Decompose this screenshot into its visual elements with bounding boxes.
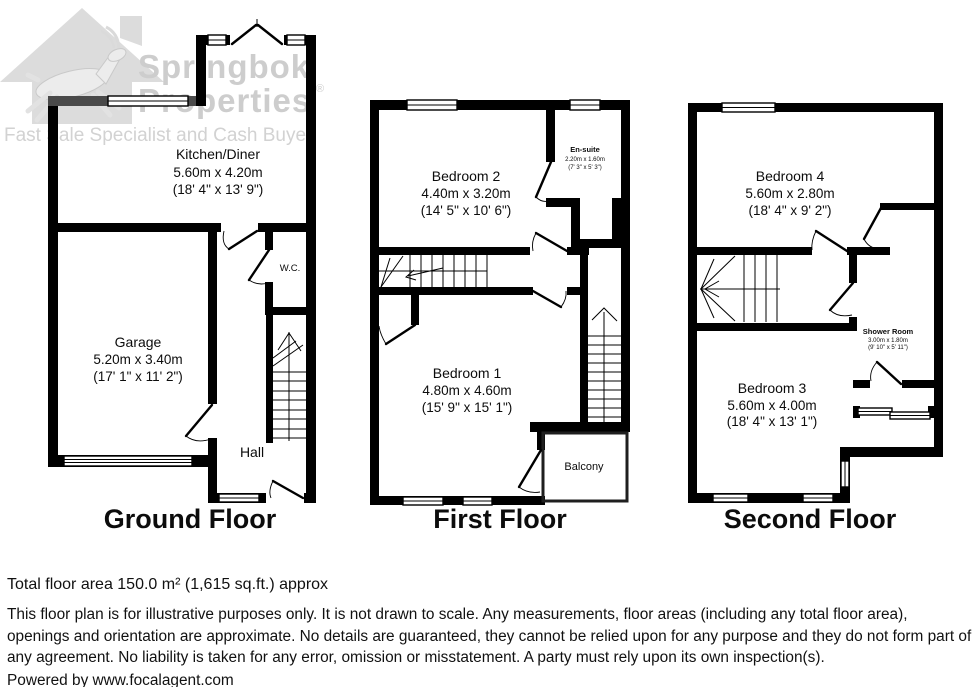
room-dims-bedroom3-imperial: (18' 4" x 13' 1") <box>727 414 818 429</box>
floor-plans-canvas: Kitchen/Diner 5.60m x 4.20m (18' 4" x 13… <box>0 0 978 565</box>
room-label-hall: Hall <box>240 444 264 460</box>
ground-floor-title: Ground Floor <box>104 504 277 534</box>
room-dims-shower-imperial: (9' 10" x 5' 11") <box>868 345 908 351</box>
room-label-kitchen: Kitchen/Diner <box>176 146 260 162</box>
second-floor-plan: Bedroom 4 5.60m x 2.80m (18' 4" x 9' 2")… <box>688 103 943 534</box>
second-floor-windows <box>713 103 930 502</box>
room-label-ensuite: En-suite <box>570 145 600 154</box>
disclaimer-text: This floor plan is for illustrative purp… <box>7 604 973 669</box>
room-dims-ensuite-metric: 2.20m x 1.60m <box>565 157 605 163</box>
first-floor-plan: Bedroom 2 4.40m x 3.20m (14' 5" x 10' 6"… <box>370 100 630 534</box>
room-dims-garage-metric: 5.20m x 3.40m <box>93 352 182 367</box>
room-dims-bedroom2-imperial: (14' 5" x 10' 6") <box>421 203 512 218</box>
room-dims-bedroom3-metric: 5.60m x 4.00m <box>727 398 816 413</box>
room-dims-kitchen-metric: 5.60m x 4.20m <box>173 165 262 180</box>
first-floor-title: First Floor <box>433 504 567 534</box>
room-label-shower: Shower Room <box>863 327 914 336</box>
room-dims-bedroom1-imperial: (15' 9" x 15' 1") <box>422 400 513 415</box>
room-dims-bedroom4-imperial: (18' 4" x 9' 2") <box>748 203 831 218</box>
room-label-bedroom1: Bedroom 1 <box>433 365 502 381</box>
room-label-bedroom2: Bedroom 2 <box>432 168 501 184</box>
second-floor-stairs <box>700 255 780 322</box>
total-floor-area: Total floor area 150.0 m² (1,615 sq.ft.)… <box>7 576 973 594</box>
room-dims-bedroom1-metric: 4.80m x 4.60m <box>422 383 511 398</box>
footer: Total floor area 150.0 m² (1,615 sq.ft.)… <box>7 576 973 687</box>
room-dims-bedroom4-metric: 5.60m x 2.80m <box>745 186 834 201</box>
second-floor-labels: Bedroom 4 5.60m x 2.80m (18' 4" x 9' 2")… <box>724 168 914 534</box>
room-dims-kitchen-imperial: (18' 4" x 13' 9") <box>173 182 264 197</box>
ground-floor-plan: Kitchen/Diner 5.60m x 4.20m (18' 4" x 13… <box>48 19 316 534</box>
second-floor-walls <box>688 103 943 503</box>
ground-floor-stairs <box>273 332 306 441</box>
room-dims-bedroom2-metric: 4.40m x 3.20m <box>421 186 510 201</box>
room-label-bedroom3: Bedroom 3 <box>738 380 807 396</box>
room-dims-garage-imperial: (17' 1" x 11' 2") <box>93 369 183 384</box>
second-floor-title: Second Floor <box>724 504 897 534</box>
room-label-wc: W.C. <box>280 263 301 274</box>
room-label-balcony: Balcony <box>564 461 604 473</box>
second-floor-doors <box>812 208 901 384</box>
room-dims-ensuite-imperial: (7' 3" x 5' 3") <box>568 165 602 171</box>
room-dims-shower-metric: 3.00m x 1.80m <box>868 338 908 344</box>
floorplan-page: Springbok Properties ® Fast Sale Special… <box>0 0 978 687</box>
room-label-bedroom4: Bedroom 4 <box>756 168 825 184</box>
powered-by-text: Powered by www.focalagent.com <box>7 672 973 687</box>
room-label-garage: Garage <box>115 334 162 350</box>
